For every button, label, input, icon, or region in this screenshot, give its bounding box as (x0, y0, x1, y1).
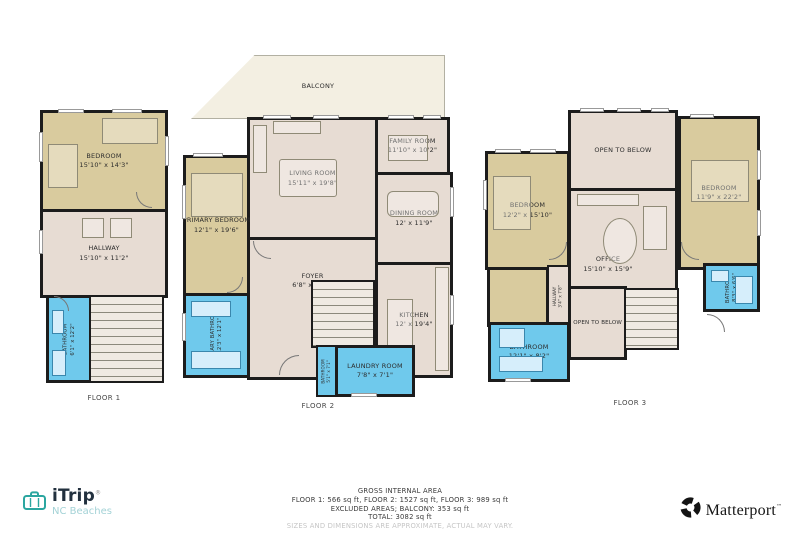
suitcase-icon (22, 488, 48, 516)
room-name: HALLWAY (553, 285, 559, 307)
furniture-bed (493, 176, 531, 230)
room-label: OPEN TO BELOW (573, 319, 622, 327)
window-marker (182, 313, 186, 341)
window-marker (757, 150, 761, 180)
room-name: OPEN TO BELOW (573, 319, 622, 327)
room-dims: 15'10" x 11'2" (79, 254, 128, 263)
area-summary-title: GROSS INTERNAL AREA (0, 487, 800, 496)
itrip-logo: iTrip® NC Beaches (22, 488, 112, 517)
room-name: HALLWAY (79, 244, 128, 253)
window-marker (495, 149, 521, 153)
furniture-desk (577, 194, 639, 206)
room-label: PRIMARY BEDROOM 12'1" x 19'6" (183, 216, 250, 235)
room-name: BALCONY (302, 82, 334, 91)
room-label: HALLWAY 3'4" x 7'8" (553, 285, 565, 307)
floor3-stairs (624, 288, 679, 350)
floor2-laundry-room: LAUNDRY ROOM 7'8" x 7'1" (335, 345, 415, 397)
room-name: OPEN TO BELOW (594, 146, 651, 155)
floor2-stairs (311, 280, 375, 348)
window-marker (263, 115, 291, 119)
matterport-logo: Matterport™ (680, 497, 782, 522)
window-marker (690, 114, 714, 118)
fixture-tub (735, 276, 753, 304)
furniture-sofa (643, 206, 667, 250)
furniture-sofa (388, 135, 428, 161)
furniture-sofa (48, 144, 78, 188)
floor3-bedroom-left-closet (487, 267, 549, 327)
window-marker (757, 210, 761, 236)
window-marker (483, 180, 487, 210)
room-label: HALLWAY 15'10" x 11'2" (79, 244, 128, 263)
window-marker (58, 109, 84, 113)
floorplan-canvas: BEDROOM 15'10" x 14'3" HALLWAY 15'10" x … (0, 0, 800, 533)
furniture-rug (279, 159, 337, 197)
floor3-hallway: HALLWAY 3'4" x 7'8" (547, 265, 570, 327)
furniture-bed (691, 160, 749, 202)
furniture-bed (102, 118, 158, 144)
floor3-plan: OPEN TO BELOW OFFICE 15'10" x 15'9" BEDR… (485, 110, 775, 408)
fixture-toilet (52, 350, 66, 376)
window-marker (112, 109, 142, 113)
door-arc (707, 314, 725, 332)
itrip-registered-mark: ® (95, 490, 101, 497)
room-name: LAUNDRY ROOM (347, 362, 403, 371)
floor1-stairs (89, 295, 164, 383)
itrip-name: iTrip (52, 486, 95, 506)
room-label: LAUNDRY ROOM 7'8" x 7'1" (347, 362, 403, 381)
furniture-chair (110, 218, 132, 238)
floor3-label: FLOOR 3 (485, 399, 775, 407)
window-marker (617, 108, 641, 112)
floor1-plan: BEDROOM 15'10" x 14'3" HALLWAY 15'10" x … (40, 110, 168, 386)
window-marker (351, 393, 377, 397)
fixture-tub (191, 301, 231, 317)
matterport-icon (680, 497, 701, 522)
room-dims: 6'1" x 12'2" (69, 323, 77, 356)
itrip-wordmark: iTrip® NC Beaches (52, 488, 112, 517)
floor2-plan: BALCONY LIVING ROOM 15'11" x 19'8" FAMIL… (183, 55, 453, 400)
window-marker (505, 378, 531, 382)
room-name: BEDROOM (79, 152, 128, 161)
room-dims: 15'10" x 15'9" (583, 265, 632, 274)
furniture-chair (82, 218, 104, 238)
fixture-vanity (191, 351, 241, 369)
room-name: PRIMARY BEDROOM (183, 216, 250, 225)
room-label: OPEN TO BELOW (594, 146, 651, 155)
room-label: BATHROOM 5'1" x 7'1" (321, 359, 333, 383)
floor3-open-to-below-top: OPEN TO BELOW (568, 110, 678, 191)
window-marker (423, 115, 441, 119)
fixture-sink (711, 270, 729, 282)
fixture-shower (499, 328, 525, 348)
window-marker (39, 132, 43, 162)
window-marker (165, 136, 169, 166)
furniture-kitchen-counter (435, 267, 449, 371)
window-marker (450, 187, 454, 217)
window-marker (388, 115, 414, 119)
floor2-balcony: BALCONY (191, 55, 445, 119)
room-label: BEDROOM 15'10" x 14'3" (79, 152, 128, 171)
room-dims: 7'8" x 7'1" (347, 371, 403, 380)
floor2-dining-room: DINING ROOM 12' x 11'9" (375, 172, 453, 265)
floor2-label: FLOOR 2 (183, 402, 453, 410)
fixture-vanity (499, 356, 543, 372)
furniture-sofa (253, 125, 267, 173)
matterport-name: Matterport (706, 502, 776, 519)
room-dims: 12'1" x 19'6" (183, 226, 250, 235)
area-summary-disclaimer: SIZES AND DIMENSIONS ARE APPROXIMATE, AC… (0, 522, 800, 531)
window-marker (450, 295, 454, 325)
itrip-subtitle: NC Beaches (52, 507, 112, 517)
furniture-sofa (273, 121, 321, 134)
window-marker (530, 149, 556, 153)
window-marker (580, 108, 604, 112)
room-label: BALCONY (302, 82, 334, 91)
room-dims: 5'1" x 7'1" (327, 359, 333, 383)
room-dims: 3'4" x 7'8" (559, 285, 565, 307)
floor1-label: FLOOR 1 (40, 394, 168, 402)
furniture-bed (191, 173, 243, 217)
floor3-open-to-below-bottom: OPEN TO BELOW (568, 286, 627, 360)
floor1-hallway: HALLWAY 15'10" x 11'2" (40, 209, 168, 298)
window-marker (182, 185, 186, 219)
window-marker (193, 153, 223, 157)
room-dims: 15'10" x 14'3" (79, 161, 128, 170)
fixture-sink (52, 310, 64, 334)
window-marker (39, 230, 43, 254)
room-name: BATHROOM (321, 359, 327, 383)
furniture-dining-table (387, 191, 439, 217)
window-marker (651, 108, 669, 112)
window-marker (313, 115, 339, 119)
room-dims: 12' x 11'9" (390, 219, 438, 228)
furniture-table-oval (603, 218, 637, 264)
matterport-trademark: ™ (776, 503, 782, 510)
